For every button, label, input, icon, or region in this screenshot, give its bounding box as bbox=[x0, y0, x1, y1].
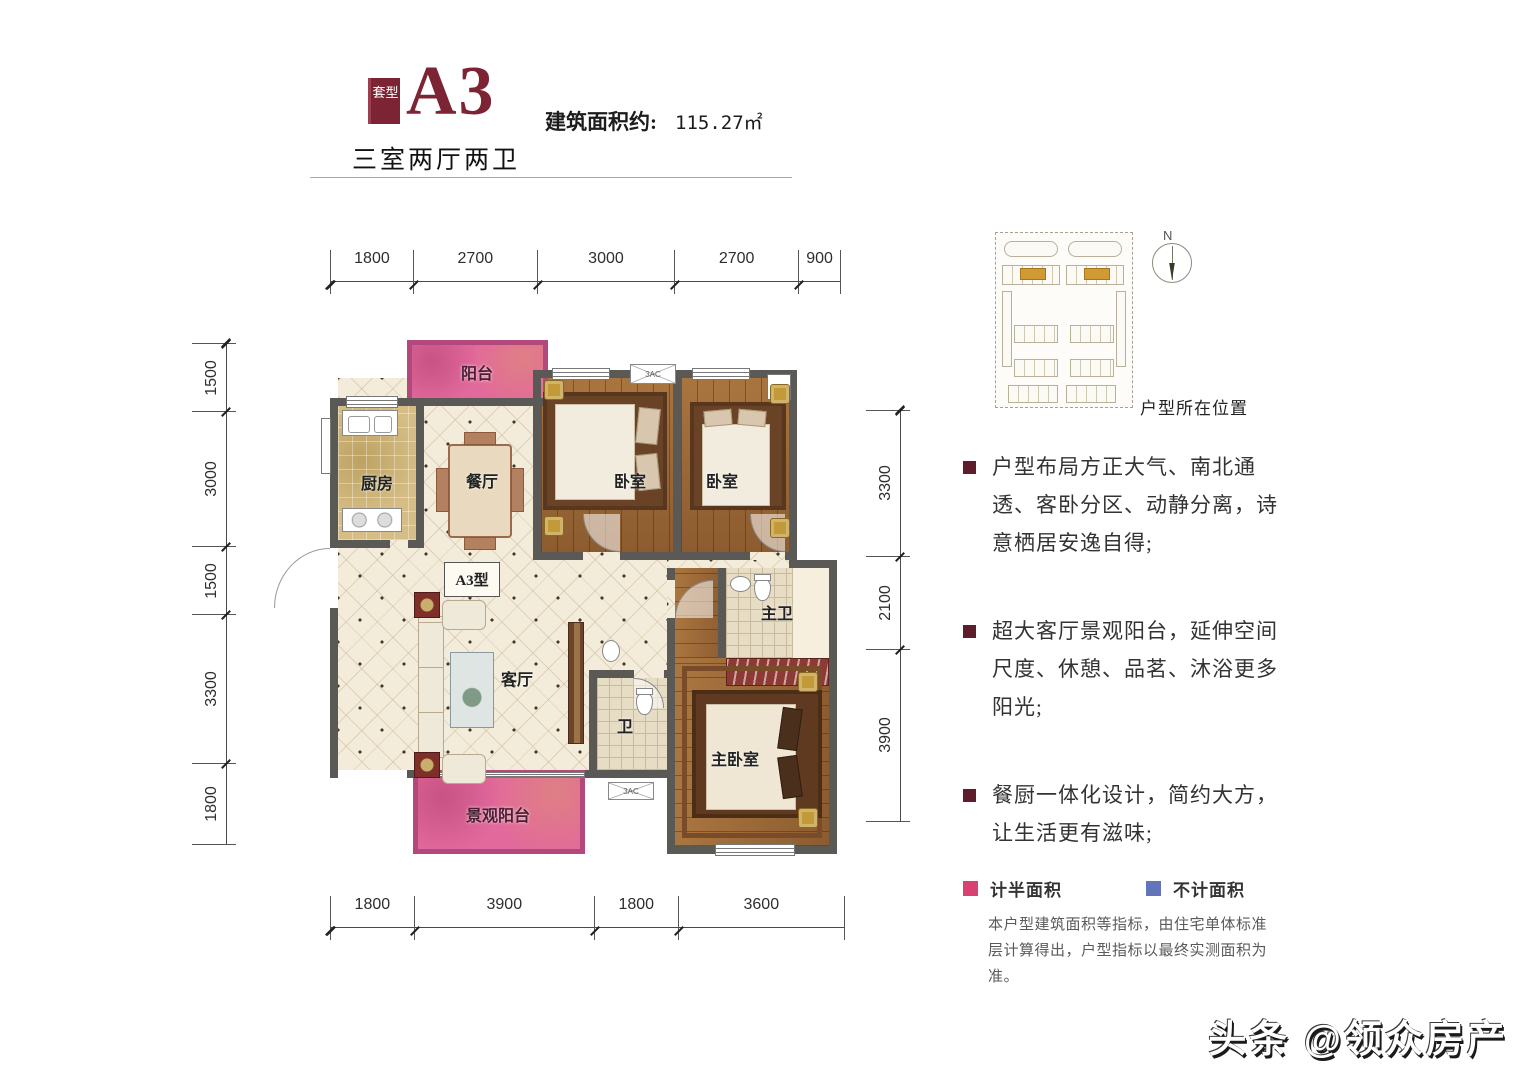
stove bbox=[342, 508, 402, 532]
wall bbox=[533, 370, 541, 560]
wall bbox=[330, 608, 338, 778]
ac-platform-top: 3AC bbox=[630, 364, 676, 384]
dim-value: 1800 bbox=[595, 896, 678, 914]
wall bbox=[589, 670, 597, 778]
legend-label: 计半面积 bbox=[990, 876, 1062, 901]
wall bbox=[416, 398, 424, 548]
label-kitchen: 厨房 bbox=[361, 470, 393, 494]
armchair bbox=[442, 754, 486, 784]
site-plan bbox=[995, 232, 1133, 408]
coffee-table bbox=[450, 652, 494, 728]
wall bbox=[673, 370, 681, 560]
dim-strip-bottom: 1800390018003600 bbox=[330, 896, 845, 940]
bathroom-sink bbox=[730, 576, 751, 592]
label-bedroom1: 卧室 bbox=[614, 468, 646, 492]
label-type-a3: A3型 bbox=[444, 562, 500, 597]
legend-no-area: 不计面积 bbox=[1146, 876, 1245, 901]
type-badge: 套型 bbox=[368, 78, 400, 124]
dim-value: 3300 bbox=[203, 671, 221, 707]
building-outline bbox=[1008, 385, 1058, 403]
dim-end-tick bbox=[192, 844, 236, 845]
building-outline bbox=[1116, 291, 1126, 367]
location-label: 户型所在位置 bbox=[1140, 394, 1248, 419]
dim-segment: 3900 bbox=[866, 649, 910, 821]
area-line: 建筑面积约:115.27㎡ bbox=[545, 106, 763, 136]
dim-segment: 3000 bbox=[192, 411, 236, 546]
compass-icon bbox=[1152, 243, 1192, 283]
dim-value: 2100 bbox=[877, 585, 895, 621]
nightstand bbox=[544, 380, 564, 400]
label-balcony-top: 阳台 bbox=[461, 360, 493, 384]
dim-segment: 2700 bbox=[674, 250, 798, 294]
dim-value: 3000 bbox=[538, 250, 674, 268]
bed2 bbox=[690, 402, 786, 510]
nightstand bbox=[544, 516, 564, 536]
pillow bbox=[777, 707, 803, 751]
selling-point-text: 餐厨一体化设计，简约大方，让生活更有滋味; bbox=[992, 776, 1285, 852]
header-divider bbox=[310, 177, 792, 178]
wall bbox=[408, 540, 424, 548]
dim-value: 3600 bbox=[679, 896, 844, 914]
nightstand bbox=[770, 384, 790, 404]
dim-value: 3300 bbox=[877, 466, 895, 502]
floorplan-page: 套型 A3 建筑面积约:115.27㎡ 三室两厅两卫 1800270030002… bbox=[0, 0, 1528, 1080]
legend-swatch-blue bbox=[1146, 881, 1161, 896]
dim-value: 2700 bbox=[414, 250, 537, 268]
sink-bowl bbox=[374, 416, 392, 433]
dim-segment: 3900 bbox=[414, 896, 594, 940]
selling-point: 餐厨一体化设计，简约大方，让生活更有滋味; bbox=[963, 776, 1285, 852]
wall bbox=[795, 846, 837, 854]
dining-chair bbox=[511, 468, 524, 512]
dining-chair bbox=[464, 432, 496, 445]
side-table bbox=[414, 752, 440, 778]
dim-end-tick bbox=[840, 250, 841, 294]
wall bbox=[667, 568, 675, 580]
area-label: 建筑面积约: bbox=[545, 110, 657, 134]
dim-value: 1500 bbox=[203, 563, 221, 599]
selling-points: 户型布局方正大气、南北通透、客卧分区、动静分离，诗意栖居安逸自得; 超大客厅景观… bbox=[963, 448, 1285, 902]
wall bbox=[718, 568, 726, 658]
label-dining: 餐厅 bbox=[466, 468, 498, 492]
dim-value: 3000 bbox=[203, 461, 221, 497]
dim-value: 3900 bbox=[415, 896, 594, 914]
label-master-bedroom: 主卧室 bbox=[711, 746, 759, 770]
dim-segment: 3300 bbox=[866, 410, 910, 556]
nightstand bbox=[798, 672, 818, 692]
dining-chair bbox=[464, 537, 496, 550]
wall bbox=[330, 398, 338, 548]
type-code: A3 bbox=[406, 52, 496, 132]
bedroom2-window bbox=[692, 368, 750, 380]
dim-segment: 3600 bbox=[678, 896, 844, 940]
kitchen-sink bbox=[342, 410, 398, 436]
wall bbox=[533, 552, 583, 560]
wall bbox=[667, 618, 675, 854]
master-window bbox=[715, 844, 795, 856]
mattress bbox=[702, 424, 770, 506]
dim-segment: 1500 bbox=[192, 343, 236, 411]
dim-segment: 2700 bbox=[413, 250, 537, 294]
bullet-square-icon bbox=[963, 625, 976, 638]
building-outline bbox=[1014, 325, 1058, 343]
building-outline bbox=[1068, 241, 1122, 257]
pillow bbox=[737, 409, 766, 427]
nightstand bbox=[798, 808, 818, 828]
building-highlight-row bbox=[1002, 265, 1060, 285]
disclaimer-text: 本户型建筑面积等指标，由住宅单体标准层计算得出，户型指标以最终实测面积为准。 bbox=[988, 912, 1274, 990]
legend-label: 不计面积 bbox=[1173, 876, 1245, 901]
side-table bbox=[414, 592, 440, 618]
dining-chair bbox=[436, 468, 449, 512]
selling-point-text: 户型布局方正大气、南北通透、客卧分区、动静分离，诗意栖居安逸自得; bbox=[992, 448, 1285, 562]
armchair bbox=[442, 600, 486, 630]
label-living: 客厅 bbox=[501, 666, 533, 690]
hall-sink bbox=[602, 640, 620, 662]
floor-plan: 3AC 3AC bbox=[330, 340, 846, 856]
compass-needle bbox=[1168, 263, 1176, 280]
bullet-square-icon bbox=[963, 789, 976, 802]
kitchen-window bbox=[346, 396, 398, 408]
sofa bbox=[418, 616, 444, 758]
tv-cabinet bbox=[568, 622, 584, 744]
legend-half-area: 计半面积 bbox=[963, 876, 1062, 901]
dim-value: 3900 bbox=[877, 718, 895, 754]
wall bbox=[829, 560, 837, 854]
wall bbox=[620, 552, 750, 560]
compass-north-label: N bbox=[1163, 228, 1172, 243]
building-outline bbox=[1070, 359, 1114, 377]
dim-value: 900 bbox=[799, 250, 840, 268]
building-outline bbox=[1066, 385, 1116, 403]
bedroom1-window bbox=[552, 368, 610, 380]
dim-value: 1500 bbox=[203, 360, 221, 396]
wall bbox=[585, 770, 675, 778]
dim-end-tick bbox=[844, 896, 845, 940]
unit-highlight bbox=[1084, 268, 1110, 280]
dim-value: 1800 bbox=[203, 786, 221, 822]
label-master-bath: 主卫 bbox=[761, 600, 793, 624]
wall bbox=[589, 670, 634, 678]
selling-point: 户型布局方正大气、南北通透、客卧分区、动静分离，诗意栖居安逸自得; bbox=[963, 448, 1285, 562]
label-bath: 卫 bbox=[617, 713, 633, 737]
wall bbox=[664, 670, 675, 678]
dim-segment: 3000 bbox=[537, 250, 674, 294]
dim-strip-right: 330021003900 bbox=[866, 410, 910, 822]
building-outline bbox=[1070, 325, 1114, 343]
building-outline bbox=[1002, 291, 1012, 367]
dim-segment: 1800 bbox=[330, 250, 413, 294]
selling-point-text: 超大客厅景观阳台，延伸空间尺度、休憩、品茗、沐浴更多阳光; bbox=[992, 612, 1285, 726]
dim-value: 2700 bbox=[675, 250, 798, 268]
dim-segment: 1800 bbox=[192, 763, 236, 844]
ac-platform-bottom: 3AC bbox=[608, 782, 654, 800]
dim-value: 1800 bbox=[331, 896, 414, 914]
selling-point: 超大客厅景观阳台，延伸空间尺度、休憩、品茗、沐浴更多阳光; bbox=[963, 612, 1285, 726]
legend-swatch-pink bbox=[963, 881, 978, 896]
dim-segment: 1500 bbox=[192, 546, 236, 614]
building-outline bbox=[1014, 359, 1058, 377]
shower-area bbox=[792, 568, 830, 658]
dim-strip-top: 1800270030002700900 bbox=[330, 250, 841, 294]
entry-door-arc bbox=[274, 548, 330, 608]
wall bbox=[330, 540, 390, 548]
dim-segment: 3300 bbox=[192, 614, 236, 762]
watermark: 头条 @领众房产 bbox=[1208, 1008, 1508, 1063]
dim-strip-left: 15003000150033001800 bbox=[192, 343, 236, 845]
bullet-square-icon bbox=[963, 461, 976, 474]
pillow bbox=[635, 407, 661, 445]
layout-subtitle: 三室两厅两卫 bbox=[352, 140, 520, 176]
dim-segment: 1800 bbox=[330, 896, 414, 940]
dim-segment: 900 bbox=[798, 250, 840, 294]
pillow bbox=[703, 409, 732, 427]
label-balcony-bottom: 景观阳台 bbox=[466, 802, 530, 826]
unit-highlight bbox=[1020, 268, 1046, 280]
kitchen-bay-window bbox=[321, 418, 331, 474]
bed1 bbox=[543, 392, 667, 510]
building-outline bbox=[1004, 241, 1058, 257]
area-value: 115.27㎡ bbox=[675, 112, 763, 134]
label-bedroom2: 卧室 bbox=[706, 468, 738, 492]
dim-segment: 2100 bbox=[866, 556, 910, 649]
dim-value: 1800 bbox=[331, 250, 413, 268]
building-highlight-row bbox=[1066, 265, 1124, 285]
dim-segment: 1800 bbox=[594, 896, 678, 940]
dim-end-tick bbox=[866, 821, 910, 822]
nightstand bbox=[770, 518, 790, 538]
sink-bowl bbox=[348, 416, 370, 433]
